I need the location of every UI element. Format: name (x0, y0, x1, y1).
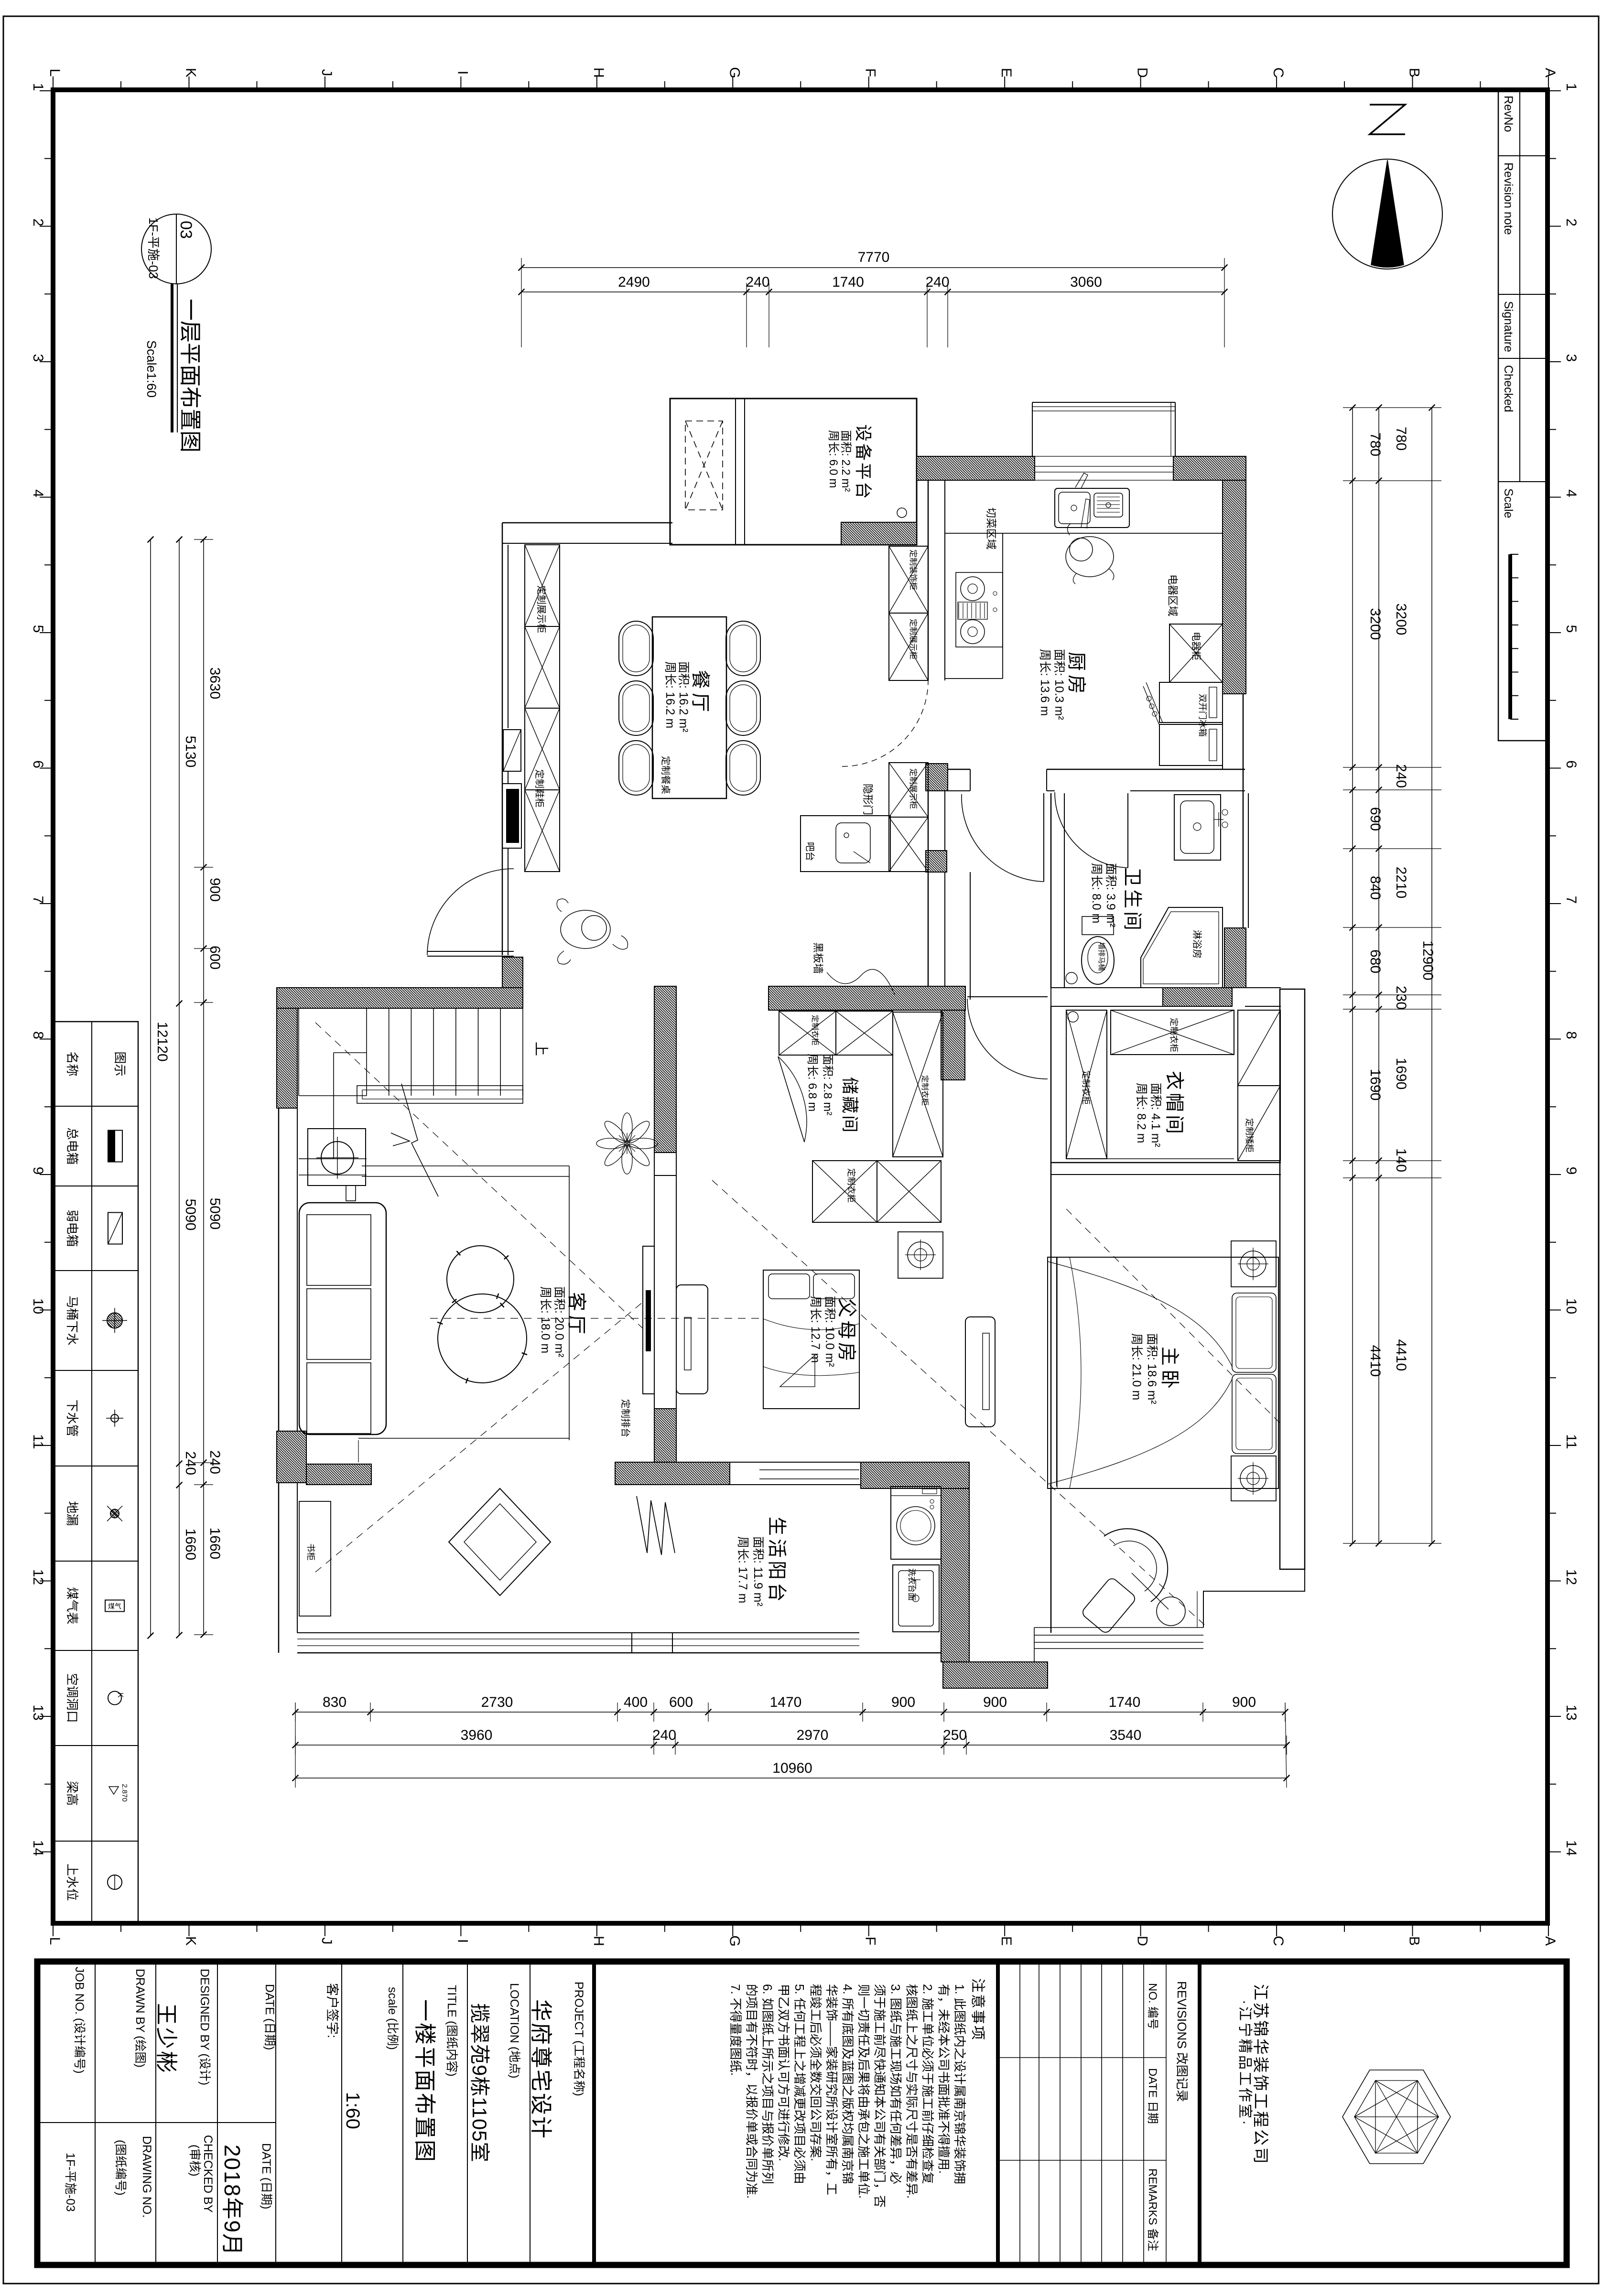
svg-text:4: 4 (30, 489, 46, 497)
svg-text:3960: 3960 (461, 1727, 493, 1743)
svg-text:6. 如图纸上所示之项目与报价单所列: 6. 如图纸上所示之项目与报价单所列 (760, 1984, 775, 2184)
svg-text:定制展示柜: 定制展示柜 (909, 619, 918, 659)
svg-text:A: A (1542, 68, 1558, 77)
svg-text:Checked: Checked (1502, 365, 1515, 412)
svg-text:2210: 2210 (1393, 867, 1409, 899)
svg-text:3630: 3630 (207, 668, 223, 700)
svg-text:G: G (726, 1935, 742, 1946)
svg-text:5: 5 (1563, 625, 1579, 633)
svg-text:(图纸编号): (图纸编号) (114, 2140, 127, 2196)
svg-text:(审核): (审核) (188, 2145, 201, 2177)
svg-text:隐形门: 隐形门 (862, 784, 874, 815)
svg-text:scale (比例): scale (比例) (386, 1987, 399, 2050)
svg-text:230: 230 (1393, 986, 1409, 1010)
svg-text:上水位: 上水位 (65, 1864, 79, 1901)
svg-text:3: 3 (1563, 354, 1579, 362)
svg-text:900: 900 (983, 1694, 1007, 1710)
svg-text:程竣工后必须全数交回公司存案.: 程竣工后必须全数交回公司存案. (809, 1984, 823, 2161)
svg-text:周长: 17.7 m: 周长: 17.7 m (736, 1536, 749, 1603)
svg-text:周长: 8.2 m: 周长: 8.2 m (1135, 1083, 1148, 1143)
svg-text:1: 1 (30, 83, 46, 91)
svg-text:G: G (726, 67, 742, 78)
svg-text:K: K (116, 1692, 124, 1698)
svg-text:F: F (863, 68, 878, 77)
svg-text:8: 8 (30, 1031, 46, 1039)
svg-text:江苏锦华装饰工程公司: 江苏锦华装饰工程公司 (1251, 1984, 1269, 2166)
svg-text:680: 680 (1367, 949, 1383, 973)
svg-text:DATE (日期): DATE (日期) (260, 2143, 273, 2209)
svg-text:Revision note: Revision note (1502, 162, 1515, 235)
svg-text:图示: 图示 (113, 1052, 127, 1077)
svg-text:客户签字:: 客户签字: (325, 1983, 339, 2038)
svg-text:6: 6 (30, 760, 46, 768)
svg-text:840: 840 (1367, 876, 1383, 900)
svg-text:D: D (1135, 1936, 1150, 1946)
svg-text:600: 600 (207, 946, 223, 970)
svg-text:定制排台: 定制排台 (620, 1399, 631, 1437)
svg-text:I: I (455, 71, 470, 75)
svg-text:墙排马桶: 墙排马桶 (1097, 942, 1105, 971)
svg-text:B: B (1407, 1936, 1422, 1946)
svg-text:一层平面布置图: 一层平面布置图 (178, 299, 203, 453)
svg-text:E: E (998, 1936, 1014, 1946)
svg-text:CHECKED BY: CHECKED BY (201, 2135, 215, 2213)
svg-text:3060: 3060 (1070, 274, 1102, 290)
svg-text:定制装饰柜: 定制装饰柜 (909, 550, 918, 590)
svg-text:900: 900 (891, 1694, 915, 1710)
svg-text:L: L (47, 69, 63, 77)
svg-text:2970: 2970 (797, 1727, 829, 1743)
svg-text:1: 1 (1563, 83, 1579, 91)
svg-text:面积: 16.2 m²: 面积: 16.2 m² (677, 661, 690, 733)
svg-text:空调洞口: 空调洞口 (65, 1673, 79, 1723)
svg-text:780: 780 (1393, 427, 1409, 451)
svg-text:240: 240 (207, 1450, 223, 1474)
svg-text:切菜区域: 切菜区域 (985, 507, 997, 550)
svg-text:5. 任何工程上之增减更改项目必须由: 5. 任何工程上之增减更改项目必须由 (792, 1984, 807, 2184)
svg-text:周长: 6.0 m: 周长: 6.0 m (827, 430, 840, 488)
svg-text:定制矮柜: 定制矮柜 (1245, 1118, 1254, 1153)
svg-text:王少彬: 王少彬 (154, 2003, 179, 2075)
svg-text:吧台: 吧台 (804, 842, 815, 861)
svg-text:周长: 21.0 m: 周长: 21.0 m (1130, 1333, 1143, 1400)
svg-text:地漏: 地漏 (65, 1501, 79, 1526)
svg-text:马桶下水: 马桶下水 (65, 1296, 79, 1346)
svg-text:面积: 10.0 m²: 面积: 10.0 m² (823, 1296, 836, 1367)
svg-text:DESIGNED BY (设计): DESIGNED BY (设计) (198, 1969, 211, 2085)
svg-text:定制衣柜: 定制衣柜 (846, 1168, 856, 1203)
svg-text:总电箱: 总电箱 (65, 1128, 79, 1165)
svg-text:卫生间: 卫生间 (1122, 867, 1143, 933)
svg-text:11: 11 (30, 1434, 46, 1449)
svg-text:12120: 12120 (154, 1022, 170, 1061)
svg-text:K: K (183, 1936, 198, 1946)
svg-text:7: 7 (30, 896, 46, 904)
svg-text:面积: 3.9 m²: 面积: 3.9 m² (1104, 863, 1117, 927)
svg-text:餐厅: 餐厅 (690, 670, 711, 716)
svg-text:1740: 1740 (1109, 1694, 1141, 1710)
svg-text:E: E (998, 68, 1014, 77)
svg-text:定制衣柜: 定制衣柜 (811, 1015, 819, 1046)
svg-text:JOB NO. (设计编号): JOB NO. (设计编号) (73, 1967, 86, 2074)
svg-text:名称: 名称 (65, 1052, 79, 1077)
svg-text:LOCATION (地点): LOCATION (地点) (508, 1983, 521, 2079)
svg-text:5130: 5130 (183, 736, 198, 768)
svg-text:一楼平面布置图: 一楼平面布置图 (412, 1999, 437, 2163)
svg-text:10960: 10960 (772, 1760, 812, 1776)
svg-text:5: 5 (30, 625, 46, 633)
svg-text:C: C (1270, 67, 1286, 78)
svg-text:须于施工前尽快通知本公司有关部门，否: 须于施工前尽快通知本公司有关部门，否 (873, 1984, 887, 2208)
svg-text:厨房: 厨房 (1066, 652, 1087, 698)
svg-text:周长: 6.8 m: 周长: 6.8 m (806, 1054, 819, 1111)
svg-text:12900: 12900 (1420, 940, 1436, 980)
svg-text:11: 11 (1563, 1434, 1579, 1449)
svg-text:H: H (591, 1936, 606, 1946)
svg-text:父母房: 父母房 (836, 1298, 857, 1364)
svg-text:面积: 2.8 m²: 面积: 2.8 m² (821, 1054, 834, 1115)
svg-text:13: 13 (30, 1704, 46, 1720)
svg-text:周长: 13.6 m: 周长: 13.6 m (1038, 649, 1051, 716)
svg-text:I: I (455, 1939, 470, 1943)
svg-text:核图纸上之尺寸与实际尺寸是否有差异.: 核图纸上之尺寸与实际尺寸是否有差异. (905, 1984, 919, 2199)
svg-text:面积: 4.1 m²: 面积: 4.1 m² (1149, 1083, 1162, 1147)
svg-text:DRAWN BY (绘图): DRAWN BY (绘图) (133, 1969, 147, 2068)
svg-text:面积: 11.9 m²: 面积: 11.9 m² (751, 1536, 765, 1606)
svg-text:1F-平施-03: 1F-平施-03 (146, 217, 161, 279)
svg-text:REVISIONS 改图记录: REVISIONS 改图记录 (1175, 1981, 1189, 2102)
svg-text:2. 施工单位必须于施工前仔细检查复: 2. 施工单位必须于施工前仔细检查复 (920, 1984, 935, 2184)
svg-text:Signature: Signature (1502, 301, 1515, 352)
svg-text:13: 13 (1563, 1704, 1579, 1720)
svg-text:C: C (1270, 1936, 1286, 1946)
svg-text:3540: 3540 (1110, 1727, 1142, 1743)
svg-text:甲乙双方书面认可方可进行修改.: 甲乙双方书面认可方可进行修改. (777, 1984, 791, 2161)
svg-text:F: F (863, 1937, 878, 1945)
svg-text:9: 9 (30, 1167, 46, 1175)
svg-text:则一切责任及后果将由承包之施工单位.: 则一切责任及后果将由承包之施工单位. (856, 1984, 871, 2199)
svg-text:2490: 2490 (618, 274, 650, 290)
svg-text:周长: 12.7 m: 周长: 12.7 m (809, 1296, 822, 1363)
svg-text:衣帽间: 衣帽间 (1164, 1071, 1185, 1137)
svg-text:弱电箱: 弱电箱 (65, 1210, 79, 1247)
svg-text:4410: 4410 (1393, 1339, 1409, 1371)
svg-text:L: L (47, 1937, 63, 1945)
svg-text:书柜: 书柜 (306, 1543, 315, 1561)
svg-text:7. 不得量度图纸.: 7. 不得量度图纸. (728, 1984, 743, 2076)
svg-text:的项目有不符时，以报价单或合同为准.: 的项目有不符时，以报价单或合同为准. (745, 1984, 759, 2199)
svg-text:Scale: Scale (1502, 488, 1515, 518)
svg-text:4410: 4410 (1367, 1345, 1383, 1377)
svg-text:面积: 10.3 m²: 面积: 10.3 m² (1052, 649, 1066, 720)
svg-text:900: 900 (1232, 1694, 1256, 1710)
svg-text:定制展示柜: 定制展示柜 (536, 585, 547, 633)
svg-text:140: 140 (1393, 1148, 1409, 1172)
svg-text:250: 250 (943, 1727, 967, 1743)
svg-text:DRAWING NO.: DRAWING NO. (140, 2136, 153, 2218)
svg-text:·江宁精品工作室·: ·江宁精品工作室· (1237, 2000, 1253, 2127)
svg-text:黑板墙: 黑板墙 (812, 942, 824, 974)
svg-text:780: 780 (1367, 432, 1383, 456)
svg-text:周长: 18.0 m: 周长: 18.0 m (539, 1286, 552, 1353)
svg-text:9: 9 (1563, 1167, 1579, 1175)
svg-text:1:60: 1:60 (342, 2092, 363, 2129)
svg-text:240: 240 (746, 274, 769, 290)
svg-text:6: 6 (1563, 760, 1579, 768)
svg-text:1660: 1660 (207, 1528, 223, 1560)
svg-text:14: 14 (30, 1840, 46, 1856)
svg-text:14: 14 (1563, 1840, 1579, 1856)
svg-text:2: 2 (1563, 218, 1579, 226)
svg-text:900: 900 (207, 878, 223, 902)
svg-text:Scale1:60: Scale1:60 (144, 340, 159, 398)
svg-text:830: 830 (323, 1694, 346, 1710)
svg-text:煤气: 煤气 (108, 1603, 121, 1610)
svg-text:5090: 5090 (207, 1198, 223, 1230)
svg-text:DATE 日期: DATE 日期 (1146, 2068, 1159, 2124)
svg-text:D: D (1135, 67, 1150, 78)
svg-text:DATE (日期): DATE (日期) (263, 1984, 276, 2050)
svg-text:周长: 8.0 m: 周长: 8.0 m (1090, 863, 1103, 923)
svg-text:定制衣柜: 定制衣柜 (1169, 1018, 1179, 1052)
svg-text:1F-平施-03: 1F-平施-03 (64, 2153, 77, 2212)
svg-text:注意事项: 注意事项 (970, 1978, 985, 2041)
svg-text:1660: 1660 (183, 1529, 198, 1561)
svg-text:电器区域: 电器区域 (1167, 574, 1179, 616)
svg-text:7: 7 (1563, 896, 1579, 904)
svg-text:华府尊宅设计: 华府尊宅设计 (529, 1999, 553, 2140)
svg-text:REMARKS 备注: REMARKS 备注 (1146, 2168, 1159, 2251)
svg-text:B: B (1407, 68, 1422, 77)
svg-text:有，未经本公司书面批准不得擅用.: 有，未经本公司书面批准不得擅用. (937, 1984, 951, 2174)
svg-text:240: 240 (925, 274, 949, 290)
svg-text:2018年9月: 2018年9月 (220, 2145, 245, 2256)
svg-text:定制餐桌: 定制餐桌 (660, 756, 671, 794)
svg-text:面积: 20.0 m²: 面积: 20.0 m² (552, 1286, 566, 1358)
svg-text:PROJECT (工程名称): PROJECT (工程名称) (572, 1982, 585, 2096)
svg-text:定制衣柜: 定制衣柜 (1081, 1070, 1091, 1105)
svg-text:2.870: 2.870 (120, 1784, 129, 1802)
svg-text:1740: 1740 (832, 274, 864, 290)
svg-text:梁高: 梁高 (65, 1781, 79, 1806)
svg-text:240: 240 (652, 1727, 676, 1743)
svg-text:煤气表: 煤气表 (65, 1587, 79, 1625)
svg-text:K: K (183, 68, 198, 77)
svg-text:揽翠苑9栋1105室: 揽翠苑9栋1105室 (468, 2003, 491, 2163)
svg-text:H: H (591, 67, 606, 78)
svg-text:上: 上 (533, 1042, 549, 1056)
svg-text:淋浴房: 淋浴房 (1191, 930, 1202, 959)
svg-text:240: 240 (183, 1451, 198, 1475)
svg-text:3200: 3200 (1367, 608, 1383, 640)
svg-text:1690: 1690 (1393, 1058, 1409, 1090)
svg-text:下水管: 下水管 (65, 1400, 79, 1437)
svg-text:10: 10 (30, 1298, 46, 1314)
svg-text:面积: 2.2 m²: 面积: 2.2 m² (839, 430, 852, 492)
svg-text:J: J (319, 1938, 335, 1945)
svg-text:7770: 7770 (858, 249, 890, 265)
svg-text:3. 图纸与施工现场如有任何差异，必: 3. 图纸与施工现场如有任何差异，必 (888, 1984, 903, 2184)
svg-text:RevNo: RevNo (1502, 96, 1515, 132)
svg-text:1690: 1690 (1367, 1069, 1383, 1101)
svg-text:A: A (1542, 1936, 1558, 1946)
svg-text:240: 240 (1393, 764, 1409, 788)
svg-text:690: 690 (1367, 807, 1383, 831)
svg-text:生活阳台: 生活阳台 (766, 1517, 787, 1605)
svg-text:面积: 18.6 m²: 面积: 18.6 m² (1145, 1333, 1158, 1404)
svg-text:周长: 16.2 m: 周长: 16.2 m (663, 661, 677, 728)
svg-text:设备平台: 设备平台 (854, 424, 873, 501)
svg-text:12: 12 (30, 1569, 46, 1585)
svg-text:1. 此图纸内之设计属南京锦华装饰拥: 1. 此图纸内之设计属南京锦华装饰拥 (953, 1984, 967, 2184)
svg-text:5090: 5090 (183, 1199, 198, 1231)
svg-text:4: 4 (1563, 489, 1579, 497)
svg-text:电器柜: 电器柜 (1191, 632, 1201, 660)
svg-text:12: 12 (1563, 1569, 1579, 1585)
svg-text:3200: 3200 (1393, 604, 1409, 636)
svg-text:定制展示柜: 定制展示柜 (909, 768, 918, 809)
svg-text:TITLE (图纸内容): TITLE (图纸内容) (445, 1985, 458, 2077)
svg-text:1470: 1470 (770, 1694, 802, 1710)
svg-text:2730: 2730 (481, 1694, 513, 1710)
svg-text:定制衣柜: 定制衣柜 (920, 1075, 929, 1106)
svg-text:8: 8 (1563, 1031, 1579, 1039)
svg-text:600: 600 (669, 1694, 693, 1710)
svg-text:华装饰――家装研究所设计室所有，工: 华装饰――家装研究所设计室所有，工 (824, 1984, 839, 2195)
svg-text:双开门冰箱: 双开门冰箱 (1198, 694, 1207, 737)
svg-text:10: 10 (1563, 1298, 1579, 1314)
svg-text:储藏间: 储藏间 (840, 1077, 860, 1134)
svg-text:洗衣台面: 洗衣台面 (907, 1568, 916, 1601)
svg-text:定制鞋柜: 定制鞋柜 (534, 769, 545, 808)
svg-text:400: 400 (624, 1694, 648, 1710)
svg-text:J: J (319, 69, 335, 76)
svg-text:2: 2 (30, 218, 46, 226)
svg-text:03: 03 (177, 221, 195, 239)
svg-text:主卧: 主卧 (1159, 1347, 1180, 1392)
svg-text:4. 所有底图及蓝图之版权均属南京锦: 4. 所有底图及蓝图之版权均属南京锦 (841, 1984, 855, 2184)
svg-text:NO. 编号: NO. 编号 (1146, 1983, 1159, 2029)
svg-text:3: 3 (30, 354, 46, 362)
